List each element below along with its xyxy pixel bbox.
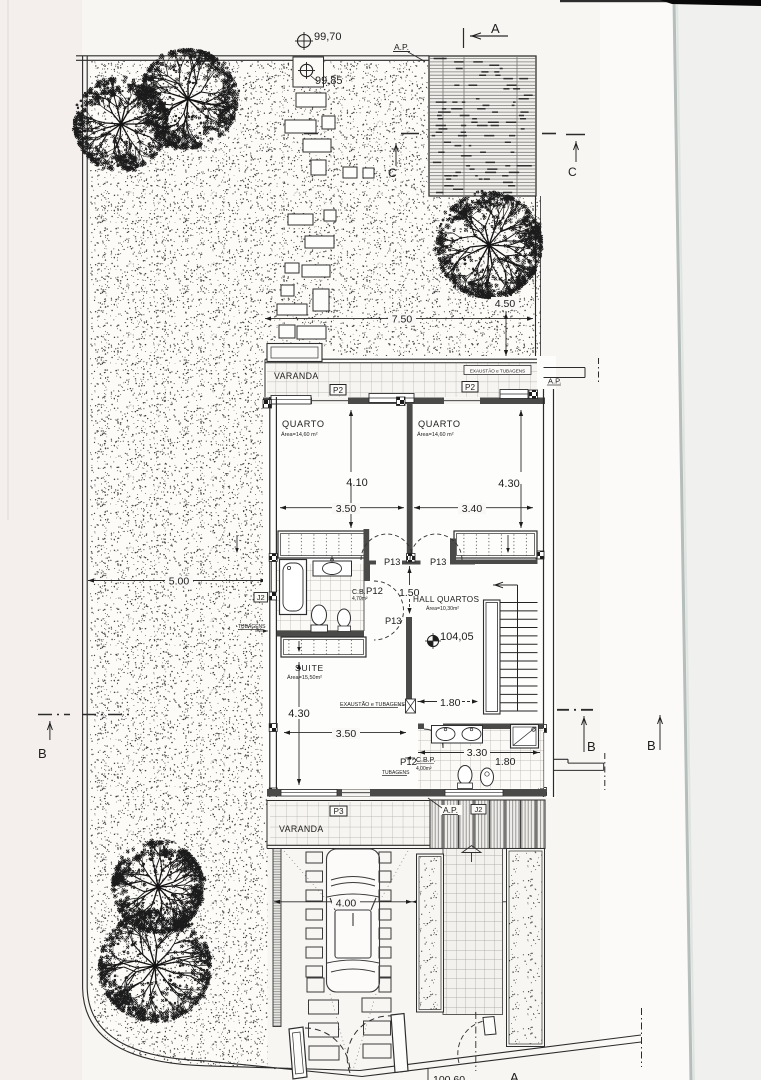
svg-text:HALL QUARTOS: HALL QUARTOS <box>413 595 479 604</box>
svg-text:P2: P2 <box>333 386 343 395</box>
svg-text:99,85: 99,85 <box>315 75 343 87</box>
svg-text:1.80: 1.80 <box>440 697 461 709</box>
svg-text:Área=14,60 m²: Área=14,60 m² <box>281 431 318 438</box>
svg-text:4.10: 4.10 <box>346 477 367 489</box>
svg-text:QUARTO: QUARTO <box>418 419 461 429</box>
svg-text:A: A <box>510 1070 519 1080</box>
svg-text:P2: P2 <box>465 383 475 392</box>
svg-text:4.30: 4.30 <box>288 708 309 720</box>
svg-text:4.50: 4.50 <box>495 298 516 310</box>
svg-text:B: B <box>587 739 596 754</box>
svg-text:TUBAGENS: TUBAGENS <box>382 770 410 776</box>
svg-text:VARANDA: VARANDA <box>279 824 324 834</box>
svg-text:4,00m²: 4,00m² <box>416 766 432 772</box>
svg-text:C.B.: C.B. <box>352 589 366 596</box>
svg-text:A: A <box>491 21 500 36</box>
svg-text:4.00: 4.00 <box>336 898 357 910</box>
svg-text:A.P.: A.P. <box>443 805 458 815</box>
svg-text:TUBAGENS: TUBAGENS <box>238 624 266 630</box>
svg-text:C: C <box>388 166 397 180</box>
svg-text:99,70: 99,70 <box>314 31 342 43</box>
svg-text:A.P.: A.P. <box>548 377 561 386</box>
svg-text:Área=14,60 m²: Área=14,60 m² <box>417 431 454 438</box>
svg-text:3.30: 3.30 <box>467 747 488 759</box>
svg-text:P13: P13 <box>384 557 400 567</box>
svg-text:EXAUSTÃO e TUBAGENS: EXAUSTÃO e TUBAGENS <box>470 368 525 374</box>
svg-text:C: C <box>568 165 577 179</box>
svg-text:3.50: 3.50 <box>336 728 357 740</box>
svg-text:3.50: 3.50 <box>336 503 357 515</box>
svg-text:P13: P13 <box>430 557 446 567</box>
svg-text:3.40: 3.40 <box>462 503 483 515</box>
svg-text:J2: J2 <box>475 805 483 814</box>
svg-text:A.P.: A.P. <box>394 42 409 52</box>
svg-text:B: B <box>647 738 656 753</box>
svg-text:P3: P3 <box>333 807 343 816</box>
svg-text:4.30: 4.30 <box>498 478 519 490</box>
svg-text:C.B.P.: C.B.P. <box>416 757 435 764</box>
svg-text:7.50: 7.50 <box>392 314 413 326</box>
svg-text:P13: P13 <box>385 616 401 626</box>
svg-text:QUARTO: QUARTO <box>282 419 325 429</box>
svg-text:104,05: 104,05 <box>440 631 474 643</box>
svg-text:EXAUSTÃO e TUBAGENS: EXAUSTÃO e TUBAGENS <box>340 701 405 708</box>
svg-text:Área=10,30m²: Área=10,30m² <box>426 605 459 612</box>
svg-text:5.00: 5.00 <box>169 576 190 588</box>
svg-text:1.50: 1.50 <box>399 587 420 599</box>
svg-text:100,60: 100,60 <box>433 1074 465 1080</box>
svg-text:J2: J2 <box>257 593 265 602</box>
svg-text:1.80: 1.80 <box>495 756 516 768</box>
svg-text:4,70m²: 4,70m² <box>352 596 368 602</box>
svg-text:B: B <box>38 746 47 761</box>
svg-text:Área=15,50m²: Área=15,50m² <box>287 674 322 681</box>
svg-text:VARANDA: VARANDA <box>274 371 319 381</box>
svg-text:P12: P12 <box>366 586 383 597</box>
